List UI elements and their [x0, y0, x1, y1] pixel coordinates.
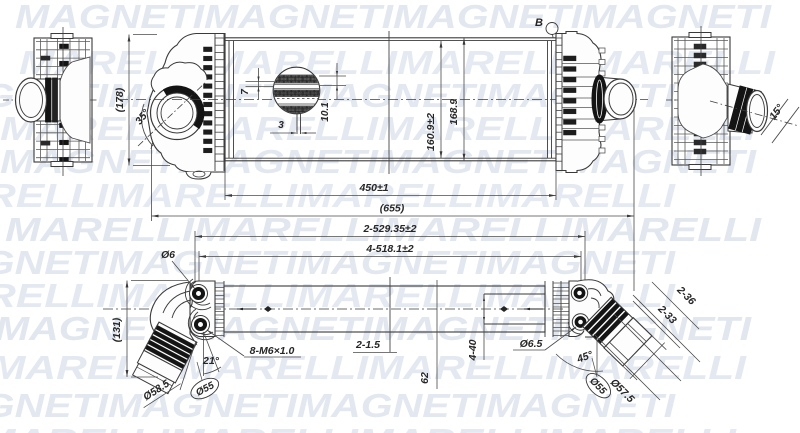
svg-text:MARELLIMARELLIMARELLIMARELLI: MARELLIMARELLIMARELLIMARELLI [19, 44, 776, 81]
svg-text:MARELLIMARELLIMARELLIMARELLI: MARELLIMARELLIMARELLIMARELLI [0, 422, 737, 433]
svg-text:MAGNETIMAGNETIMAGNETIMAGNETI: MAGNETIMAGNETIMAGNETIMAGNETI [15, 0, 772, 35]
svg-text:3: 3 [278, 120, 284, 131]
svg-text:450±1: 450±1 [358, 182, 388, 194]
svg-text:MARELLIMARELLIMARELLIMARELLI: MARELLIMARELLIMARELLIMARELLI [0, 110, 757, 147]
svg-text:Ø6: Ø6 [161, 249, 175, 261]
svg-text:168.9: 168.9 [448, 99, 460, 125]
svg-text:4-40: 4-40 [467, 339, 479, 361]
svg-text:62: 62 [419, 372, 431, 384]
svg-text:8-M6×1.0: 8-M6×1.0 [250, 345, 295, 357]
svg-text:(131): (131) [111, 317, 123, 342]
svg-text:7: 7 [240, 89, 251, 95]
svg-text:10.1: 10.1 [320, 102, 331, 122]
svg-text:21°: 21° [202, 355, 220, 367]
svg-text:160.9±2: 160.9±2 [425, 113, 437, 151]
svg-text:2-1.5: 2-1.5 [355, 339, 380, 351]
svg-text:B: B [535, 17, 543, 29]
svg-text:4-518.1±2: 4-518.1±2 [365, 243, 413, 255]
svg-text:Ø6.5: Ø6.5 [520, 338, 543, 350]
svg-text:MARELLIMARELLIMARELLIMARELLI: MARELLIMARELLIMARELLIMARELLI [0, 349, 747, 386]
svg-text:MAGNETIMAGNETIMAGNETIMAGNETI: MAGNETIMAGNETIMAGNETIMAGNETI [0, 387, 676, 424]
svg-text:2-529.35±2: 2-529.35±2 [362, 223, 416, 235]
svg-text:MAGNETIMAGNETIMAGNETIMAGNETI: MAGNETIMAGNETIMAGNETIMAGNETI [0, 143, 757, 180]
svg-text:(655): (655) [380, 203, 405, 215]
svg-text:MAGNETIMAGNETIMAGNETIMAGNETI: MAGNETIMAGNETIMAGNETIMAGNETI [0, 244, 676, 281]
